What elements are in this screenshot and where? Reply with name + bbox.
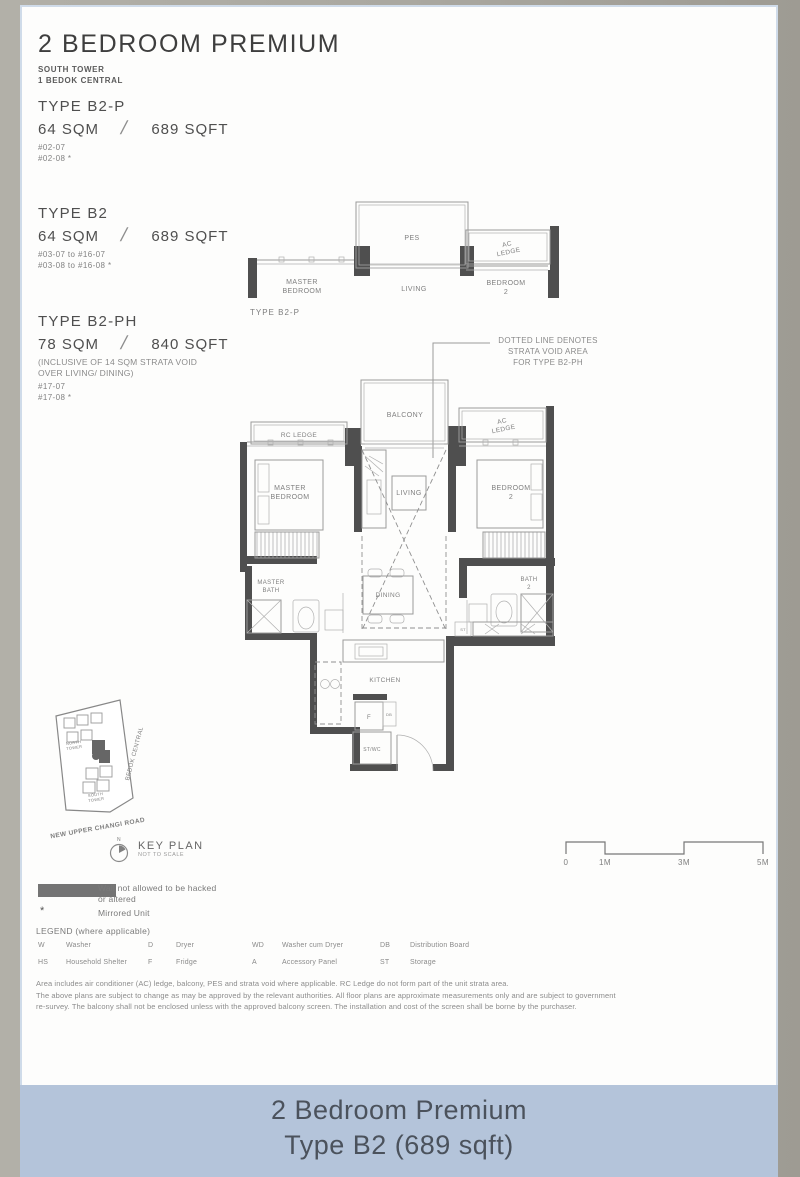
- subtitle-address: 1 BEDOK CENTRAL: [38, 75, 123, 86]
- type-name: TYPE B2: [38, 205, 229, 222]
- plan-b2p-drawing: PES AC LEDGE MASTER BEDROOM LIVING BEDRO…: [244, 200, 564, 318]
- scale-tick: 1M: [599, 858, 611, 867]
- entry-door: [397, 735, 433, 771]
- disclaimer-line: Area includes air conditioner (AC) ledge…: [36, 978, 768, 990]
- subtitle-tower: SOUTH TOWER: [38, 64, 123, 75]
- label-living: LIVING: [396, 490, 421, 497]
- unit-range: #02-08 *: [38, 153, 229, 164]
- type-block-b2ph: TYPE B2-PH 78 SQM / 840 SQFT (INCLUSIVE …: [38, 313, 229, 403]
- abbr-label: Fridge: [176, 959, 197, 966]
- scale-tick: 5M: [757, 858, 768, 867]
- unit-range: #03-08 to #16-08 *: [38, 260, 229, 271]
- abbr-label: Storage: [410, 959, 436, 966]
- label-fridge: F: [367, 715, 371, 721]
- mirrored-label: Mirrored Unit: [98, 908, 150, 919]
- label-rc-ledge: RC LEDGE: [281, 432, 318, 439]
- wardrobes: [255, 532, 545, 558]
- strata-note: (INCLUSIVE OF 14 SQM STRATA VOID: [38, 357, 229, 368]
- abbr-label: Washer: [66, 942, 91, 949]
- label-ac-ledge: LEDGE: [491, 423, 516, 435]
- caption-title: 2 Bedroom Premium: [20, 1093, 778, 1128]
- master-bath-fixtures: [247, 593, 343, 633]
- abbr-key: HS: [38, 959, 48, 966]
- label-bath2: 2: [527, 585, 531, 591]
- abbr-label: Dryer: [176, 942, 194, 949]
- area-sqft: 689 SQFT: [151, 121, 228, 138]
- label-ac-ledge: LEDGE: [496, 246, 521, 258]
- area-sqm: 64 SQM: [38, 228, 99, 245]
- key-plan-caption: N KEY PLAN NOT TO SCALE: [106, 834, 204, 864]
- area-sqm: 78 SQM: [38, 336, 99, 353]
- legend-heading: LEGEND (where applicable): [36, 926, 150, 936]
- abbr-label: Household Shelter: [66, 959, 127, 966]
- slash: /: [118, 118, 130, 140]
- scale-tick: 3M: [678, 858, 690, 867]
- floor-plan-page: 2 BEDROOM PREMIUM SOUTH TOWER 1 BEDOK CE…: [0, 0, 800, 1177]
- label-st-wc: ST/WC: [363, 747, 381, 753]
- kitchen-fixtures: [315, 640, 444, 764]
- bath2-fixtures: [455, 594, 553, 636]
- abbr-label: Accessory Panel: [282, 959, 337, 966]
- label-master-bedroom: MASTER: [286, 279, 318, 286]
- svg-text:N: N: [117, 837, 121, 843]
- walls: [240, 406, 555, 771]
- abbr-key: DB: [380, 942, 390, 949]
- abbr-key: ST: [380, 959, 389, 966]
- abbr-label: Washer cum Dryer: [282, 942, 343, 949]
- slash: /: [118, 333, 130, 355]
- label-master-bath: BATH: [263, 588, 280, 594]
- unit-range: #02-07: [38, 142, 229, 153]
- key-plan-title: KEY PLAN: [138, 840, 204, 852]
- label-bedroom2: 2: [509, 494, 513, 501]
- page-title: 2 BEDROOM PREMIUM: [38, 30, 340, 59]
- type-block-b2p: TYPE B2-P 64 SQM / 689 SQFT #02-07 #02-0…: [38, 98, 229, 164]
- disclaimer-line: re-survey. The balcony shall not be encl…: [36, 1001, 768, 1013]
- void-note-line: STRATA VOID AREA: [486, 346, 610, 357]
- label-dining: DINING: [375, 592, 400, 599]
- area-sqft: 840 SQFT: [151, 336, 228, 353]
- label-bedroom2: 2: [504, 289, 508, 296]
- label-master-bath: MASTER: [257, 580, 284, 586]
- label-master-bedroom: MASTER: [274, 485, 306, 492]
- caption-subtitle: Type B2 (689 sqft): [20, 1128, 778, 1163]
- type-name: TYPE B2-P: [38, 98, 229, 115]
- strata-note: OVER LIVING/ DINING): [38, 368, 229, 379]
- living-cabinet: [362, 450, 386, 528]
- type-block-b2: TYPE B2 64 SQM / 689 SQFT #03-07 to #16-…: [38, 205, 229, 271]
- void-note-line: FOR TYPE B2-PH: [486, 357, 610, 368]
- compass-icon: N: [106, 834, 132, 864]
- caption-bar: 2 Bedroom Premium Type B2 (689 sqft): [20, 1085, 778, 1177]
- label-kitchen: KITCHEN: [369, 677, 400, 684]
- unit-range: #17-08 *: [38, 392, 229, 403]
- label-bedroom2: BEDROOM: [491, 485, 530, 492]
- label-db: DB: [386, 712, 392, 717]
- wall-note: Wall not allowed to be hacked: [98, 883, 216, 894]
- label-pes: PES: [404, 235, 419, 242]
- void-note-line: DOTTED LINE DENOTES: [486, 335, 610, 346]
- abbr-key: A: [252, 959, 257, 966]
- abbr-label: Distribution Board: [410, 942, 469, 949]
- abbr-key: W: [38, 942, 45, 949]
- area-sqm: 64 SQM: [38, 121, 99, 138]
- label-balcony: BALCONY: [387, 412, 423, 419]
- mirrored-symbol: *: [40, 905, 44, 917]
- unit-range: #03-07 to #16-07: [38, 249, 229, 260]
- label-master-bedroom: BEDROOM: [270, 494, 309, 501]
- scale-bar: 0 1M 3M 5M: [562, 832, 768, 868]
- abbr-key: F: [148, 959, 152, 966]
- abbr-key: D: [148, 942, 153, 949]
- key-plan-subtitle: NOT TO SCALE: [138, 852, 204, 858]
- key-plan-map: NORTH TOWER SOUTH TOWER BEDOK CENTRAL NE…: [36, 692, 221, 844]
- unit-range: #17-07: [38, 381, 229, 392]
- strata-void-dashed-lines: [362, 450, 446, 630]
- label-st: ST: [460, 627, 466, 632]
- plan-b2p-caption: TYPE B2-P: [250, 308, 300, 317]
- abbr-key: WD: [252, 942, 264, 949]
- label-bedroom2: BEDROOM: [486, 280, 525, 287]
- disclaimer-line: The above plans are subject to change as…: [36, 990, 768, 1002]
- type-name: TYPE B2-PH: [38, 313, 229, 330]
- label-master-bedroom: BEDROOM: [282, 288, 321, 295]
- main-floor-plan-drawing: RC LEDGE BALCONY AC LEDGE MASTER BEDROOM…: [235, 378, 565, 778]
- label-bedok-central: BEDOK CENTRAL: [125, 726, 145, 781]
- area-sqft: 689 SQFT: [151, 228, 228, 245]
- wall-note: or altered: [98, 894, 216, 905]
- label-living: LIVING: [401, 286, 426, 293]
- label-bath2: BATH: [521, 577, 538, 583]
- scale-tick: 0: [564, 858, 569, 867]
- slash: /: [118, 225, 130, 247]
